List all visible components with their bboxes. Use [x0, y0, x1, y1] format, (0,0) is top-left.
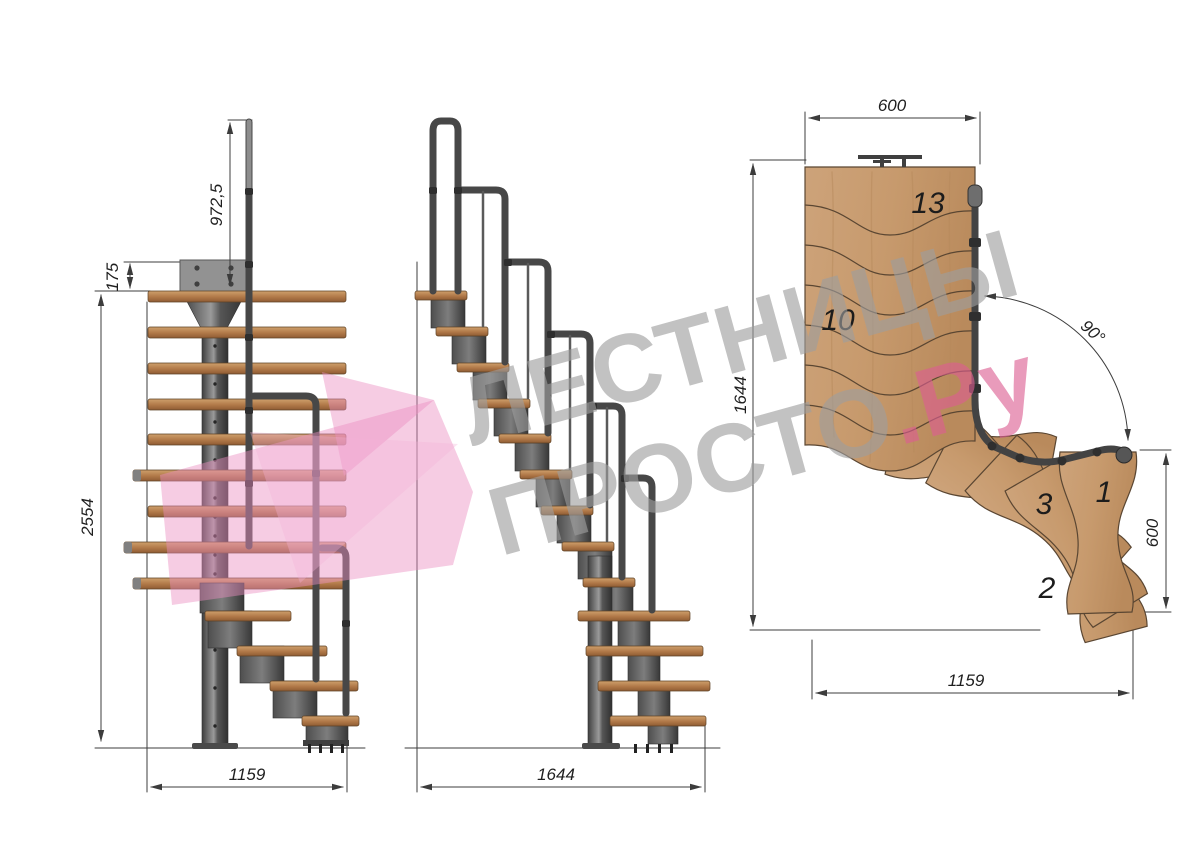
tread — [598, 681, 710, 691]
tread-number-2: 2 — [1038, 572, 1056, 605]
dim-turn-angle: 90° — [1077, 316, 1109, 347]
handrail-cap — [968, 185, 982, 207]
column-base-flange — [192, 743, 238, 749]
step-module — [638, 690, 670, 717]
front-handrail — [249, 122, 346, 713]
tread-number-3: 3 — [1036, 488, 1053, 521]
dim-side-length: 1644 — [537, 765, 575, 784]
step-module — [431, 300, 465, 328]
handrail-end-knob — [1116, 447, 1132, 463]
tread — [586, 646, 703, 656]
staircase-technical-drawing: 972,5 175 2554 1159 — [0, 0, 1200, 849]
tread-number-1: 1 — [1096, 476, 1113, 509]
tread — [436, 327, 488, 336]
dim-plan-bottom-width: 1159 — [948, 671, 985, 690]
step-module — [628, 655, 660, 682]
tread — [302, 716, 359, 726]
tread — [610, 716, 706, 726]
dim-rail-height: 972,5 — [207, 183, 226, 226]
dim-front-width: 1159 — [229, 765, 266, 784]
tread-end-caps — [124, 470, 141, 589]
tread — [583, 578, 635, 587]
support-column-flange — [582, 743, 620, 749]
wall-mount-plate — [180, 260, 248, 292]
top-bracket — [858, 155, 922, 167]
tread — [578, 611, 690, 621]
dim-plate-offset: 175 — [103, 262, 122, 291]
tread-number-13: 13 — [911, 187, 945, 220]
dim-plan-side-width: 600 — [1143, 518, 1162, 547]
drawing-canvas: 972,5 175 2554 1159 — [0, 0, 1200, 849]
tread — [205, 611, 291, 621]
dim-plan-top-width: 600 — [878, 96, 907, 115]
handrail-hoop — [433, 121, 458, 291]
step-module — [618, 620, 650, 647]
dim-total-height: 2554 — [78, 498, 97, 537]
step-module — [648, 725, 678, 744]
